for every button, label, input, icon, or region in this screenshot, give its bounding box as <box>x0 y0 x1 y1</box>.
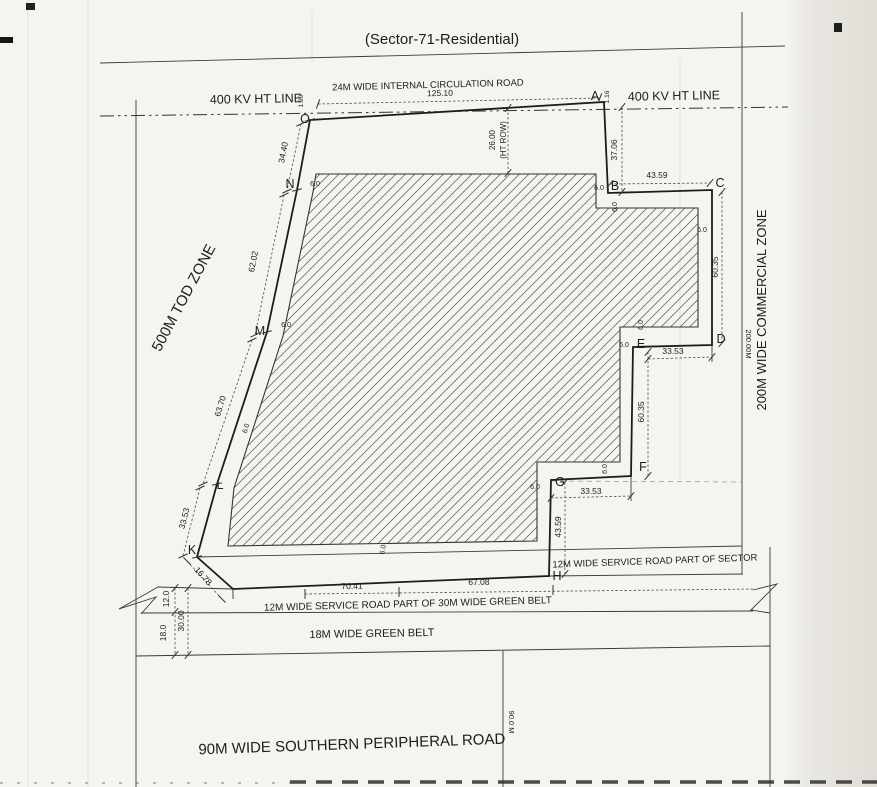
dim-125-10: 125.10 <box>427 88 453 98</box>
dim-43-59-bc: 43.59 <box>646 170 668 180</box>
dim-43-59-gh: 43.59 <box>553 516 563 538</box>
tod-zone-label: 500M TOD ZONE <box>149 242 220 355</box>
dim-63-70: 63.70 <box>212 394 228 418</box>
dim-1-16: 1.16 <box>604 90 611 103</box>
green-belt-label: 18M WIDE GREEN BELT <box>309 627 435 641</box>
break-symbol-right <box>751 584 777 613</box>
offset-label-6-0-2: 6.0 <box>242 423 252 434</box>
ht-line-right-label: 400 KV HT LINE <box>628 88 720 104</box>
ht-line-left-label: 400 KV HT LINE <box>210 91 302 107</box>
offset-label-6-0-9: 6.0 <box>530 484 540 491</box>
g-extension-dashed-line <box>551 481 742 482</box>
dim-33-53-gf: 33.53 <box>580 486 602 496</box>
vertex-label-D: D <box>716 332 725 346</box>
dim-ht-row: (HT ROW) <box>499 121 508 159</box>
vertex-label-A: A <box>591 89 600 103</box>
dim-tick <box>198 482 207 486</box>
dim-33-53-lk: 33.53 <box>177 506 192 529</box>
dim-12-0: 12.0 <box>161 590 171 607</box>
dim-200-00m: 200.00M <box>744 329 753 358</box>
title: (Sector-71-Residential) <box>365 31 519 48</box>
dim-tick <box>562 570 568 578</box>
scanned-site-plan: (Sector-71-Residential)24M WIDE INTERNAL… <box>0 0 877 787</box>
vertex-label-B: B <box>611 179 619 193</box>
commercial-zone-label: 200M WIDE COMMERCIAL ZONE <box>754 209 769 410</box>
offset-label-6-0-5: 6.0 <box>697 227 707 234</box>
title-underline <box>100 46 785 63</box>
dim-34-40: 34.40 <box>276 141 290 164</box>
dim-18-0: 18.0 <box>158 624 168 641</box>
dim-26-00: 26.00 <box>488 129 497 150</box>
page-edge-shadow <box>786 0 877 787</box>
break-symbol-left <box>119 587 158 614</box>
service-road-sector-label: 12M WIDE SERVICE ROAD PART OF SECTOR <box>552 552 757 570</box>
vertex-label-H: H <box>552 569 561 583</box>
vertex-label-L: L <box>217 478 224 492</box>
offset-label-6-0-6: 6.0 <box>638 320 645 330</box>
green-belt-south-line <box>136 646 770 656</box>
dim-30-00: 30.00 <box>176 610 186 632</box>
hatched-plot-area <box>228 174 698 546</box>
dim-16-78: 16.78 <box>192 565 214 588</box>
offset-label-6-0-1: 6.0 <box>281 322 291 329</box>
greenbelt-road-south-line <box>141 611 753 613</box>
offset-label-6-0-0: 6.0 <box>310 181 320 188</box>
vertex-label-K: K <box>188 543 197 557</box>
dim-tick <box>619 103 625 111</box>
service-road-south-line <box>549 574 742 576</box>
service-road-greenbelt-label: 12M WIDE SERVICE ROAD PART OF 30M WIDE G… <box>264 595 552 614</box>
southern-road-label: 90M WIDE SOUTHERN PERIPHERAL ROAD <box>198 731 506 759</box>
dim-tick <box>218 595 225 602</box>
dim-tick <box>707 179 713 187</box>
site-plan-svg: (Sector-71-Residential)24M WIDE INTERNAL… <box>0 0 877 787</box>
dim-60-35-ef: 60.35 <box>636 401 646 423</box>
offset-label-6-0-8: 6.0 <box>602 464 609 474</box>
vertex-label-O: O <box>300 112 310 126</box>
dim-60-35-cd: 60.35 <box>710 256 720 278</box>
vertex-label-N: N <box>285 177 294 191</box>
vertex-label-F: F <box>639 460 647 474</box>
vertex-label-E: E <box>637 337 645 351</box>
offset-label-6-0-4: 6.0 <box>612 202 619 212</box>
offset-label-6-0-3: 6.0 <box>594 185 604 192</box>
dim-62-02: 62.02 <box>246 250 260 273</box>
vertex-label-G: G <box>555 475 565 489</box>
greenbelt-road-north-line <box>158 587 233 589</box>
dim-67-08: 67.08 <box>468 577 490 587</box>
offset-label-6-0-7: 6.0 <box>619 342 629 349</box>
dim-90-0m: 90.0 M <box>507 711 516 734</box>
dim-tick <box>172 584 178 592</box>
dim-33-53-ed: 33.53 <box>662 346 684 356</box>
dim-70-41: 70.41 <box>341 581 363 591</box>
vertex-label-M: M <box>255 324 265 338</box>
dim-tick <box>183 557 190 564</box>
dim-tick <box>645 348 651 356</box>
dim-tick <box>247 338 256 342</box>
dim-37-06: 37.06 <box>609 139 619 161</box>
vertex-label-C: C <box>715 176 724 190</box>
dim-1-99: 1.99 <box>298 94 305 107</box>
